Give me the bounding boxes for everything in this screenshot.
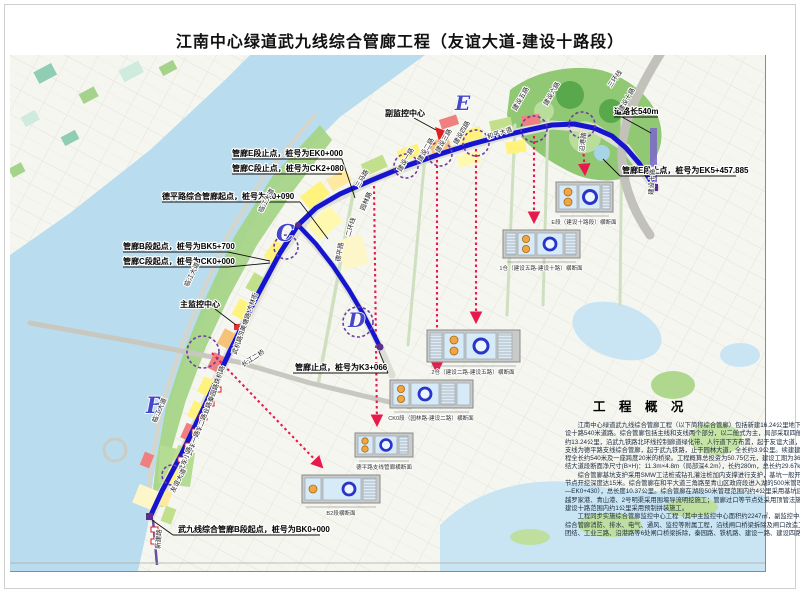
cross-section-inset-a: 2仓（建设二路-建设五路）横断面 <box>427 330 520 376</box>
drawing-sheet: 江南中心绿道武九线综合管廊工程（友谊大道-建设十路段） <box>0 0 800 593</box>
page-title: 江南中心绿道武九线综合管廊工程（友谊大道-建设十路段） <box>0 28 800 52</box>
cross-section-inset-f: 1仓（建设五路-建设十路）横断面 <box>499 230 583 272</box>
overview-title: 工 程 概 况 <box>593 396 763 415</box>
cross-section-inset-e: E段（建设十路段）横断面 <box>551 182 617 226</box>
overview-line: 工程同步实施综合管廊监控中心工程（其中主监控中心面积约2247㎡，副监控中心面积… <box>565 513 763 521</box>
section-letter-e: E <box>454 91 471 115</box>
cross-section-inset-c: 德平路支线管廊横断面 <box>355 433 413 471</box>
overview-line: 越罗家港、青山港、2号明渠采用围堰导流明挖施工；管廊过口等节点处采用顶管法施工；… <box>565 497 763 505</box>
inset-caption: B2段横断面 <box>326 509 356 517</box>
callout-sub-center: 副监控中心 <box>385 108 425 118</box>
overview-line: 综合管廊消防、排水、电气、通风、监控等附属工程，沿线闸口桥梁拆除及闸口改造工程（… <box>565 522 763 530</box>
overview-line: 约13.24公里，沿武九铁路北环线控制廊道绿化带、人行道下方布置，起于友谊大道，… <box>565 439 763 447</box>
inset-caption: 2仓（建设二路-建设五路）横断面 <box>431 368 515 376</box>
inset-caption: 德平路支线管廊横断面 <box>356 463 412 471</box>
callout-b-start-bk0: 武九线综合管廊B段起点，桩号为BK0+000 <box>178 524 330 534</box>
inset-caption: 1仓（建设五路-建设十路）横断面 <box>499 264 583 272</box>
overview-line: 结大道段断面净尺寸(B×H)：11.3m×4.8m（局部深4.2m），长约280… <box>565 463 763 471</box>
callout-e-end-457: 管廊E段止点，桩号为EK5+457.885 <box>622 165 749 175</box>
cross-section-inset-b: CK0段（园林路-建设二路）横断面 <box>388 380 474 422</box>
inset-caption: CK0段（园林路-建设二路）横断面 <box>388 414 474 422</box>
overview-line: 综合管廊基坑支护采用SMW工法桩或钻孔灌注桩加内支撑进行支护，基坑一般开挖深度为… <box>565 472 763 480</box>
callout-branch-end: 管廊止点，桩号为K3+066 <box>295 362 388 372</box>
callout-main-center: 主监控中心 <box>180 299 220 309</box>
overview-line: 设十路540米道路。综合管廊包括主线和支线两个部分，以二舱式为主，局部采取四舱形… <box>565 430 763 438</box>
callout-e-end-0: 管廊E段止点，桩号为EK0+000 <box>232 148 343 158</box>
overview-line: 团结、工业三路、沿港路等6处闸口桥梁拆除，秦园路、铁机路、建设一路、建设四路等4… <box>565 530 763 538</box>
overview-line: 支线为德平路支线综合管廊，起于武九铁路，止于园林大道，全长约3.9公里。续建建设… <box>565 447 763 455</box>
callout-c-end: 管廊C段止点，桩号为CK2+080 <box>232 163 344 173</box>
overview-line: —EK0+430），总长度10.37公里。综合管廊在湖段50米管理范围内约4公里… <box>565 488 763 496</box>
inset-caption: E段（建设十路段）横断面 <box>551 218 617 226</box>
section-letter-d: D <box>347 308 366 332</box>
project-overview: 工 程 概 况 江南中心绿道武九线综合管廊工程（以下简称综合管廊）包括新建16.… <box>565 396 763 538</box>
section-letter-c: C <box>276 220 295 247</box>
callout-b-start-bk5: 管廊B段起点，桩号为BK5+700 <box>123 241 235 251</box>
callout-c-start: 管廊C段起点，桩号为CK0+000 <box>123 256 235 266</box>
